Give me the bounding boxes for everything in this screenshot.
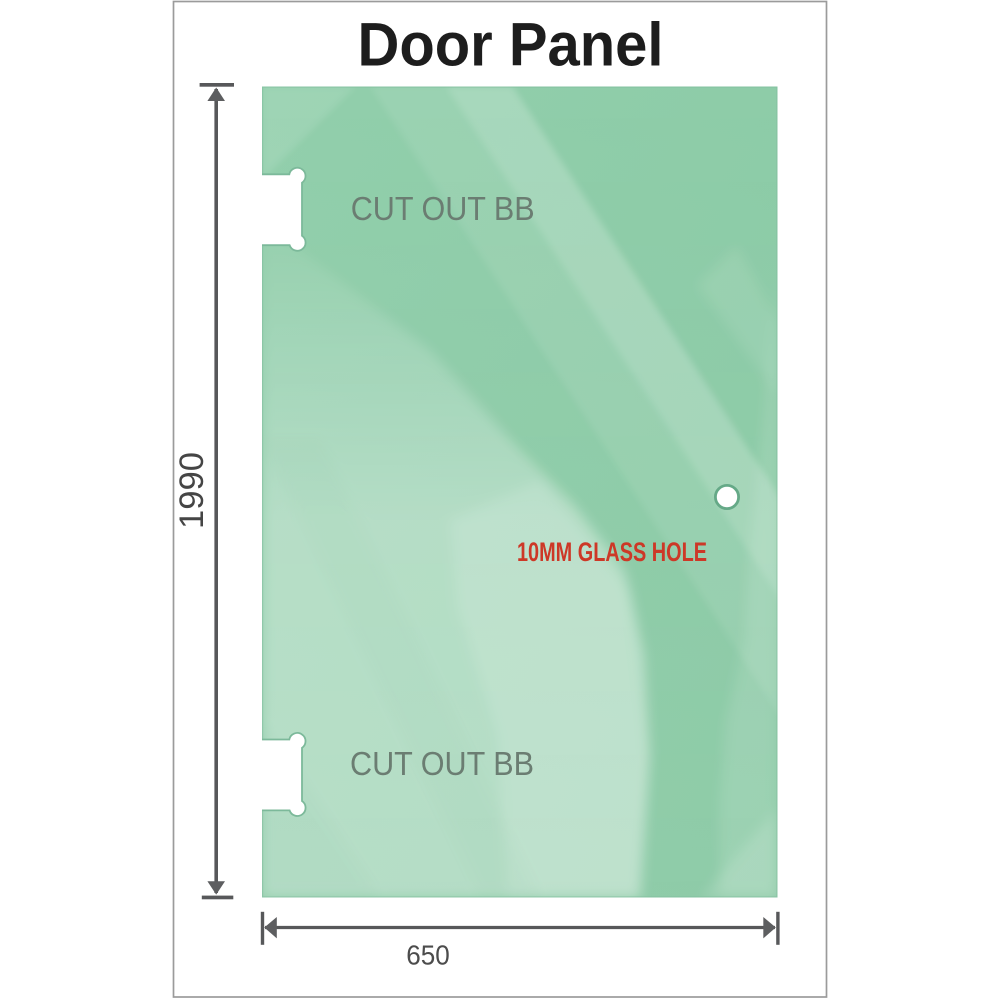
svg-text:1990: 1990 [173, 452, 211, 529]
svg-text:CUT OUT BB: CUT OUT BB [351, 190, 535, 227]
svg-text:CUT OUT BB: CUT OUT BB [350, 745, 534, 782]
svg-text:650: 650 [406, 940, 450, 971]
svg-text:Door Panel: Door Panel [358, 11, 664, 79]
svg-text:10MM GLASS HOLE: 10MM GLASS HOLE [517, 537, 707, 567]
